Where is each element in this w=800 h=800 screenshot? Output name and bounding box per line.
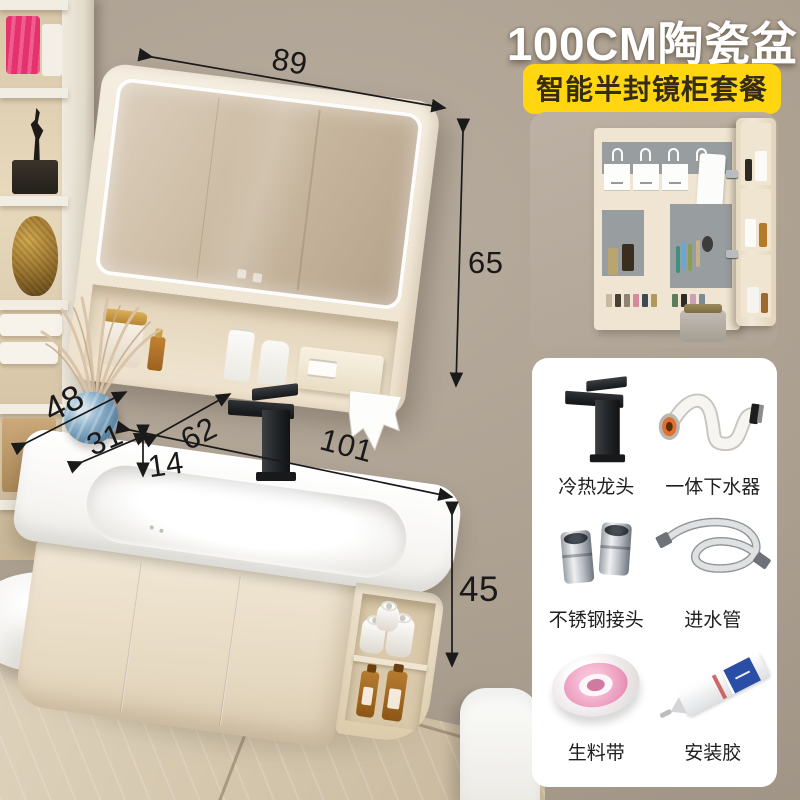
small-bottle: [608, 248, 618, 275]
makeup-item: [633, 294, 639, 307]
accessory-label: 进水管: [684, 605, 741, 634]
glue-tip: [659, 709, 672, 719]
accessory-label: 不锈钢接头: [549, 605, 644, 634]
faucet-body: [595, 399, 620, 455]
accessory-row: 生料带 安装胶: [538, 634, 771, 767]
mirror-cabinet-open-inset: [530, 112, 778, 348]
accessory-item: 冷热龙头: [538, 368, 655, 501]
product-image: 89 65 48 31 62 14 101 45 100CM陶瓷盆 智能半封镜柜…: [0, 0, 800, 800]
bottle: [745, 159, 752, 181]
hanging-hook: [612, 148, 623, 161]
makeup-item: [615, 294, 621, 307]
open-cabinet-door: [736, 118, 776, 326]
accessory-label: 生料带: [568, 738, 625, 767]
seal-tape-icon: [548, 648, 645, 725]
door-hinge: [726, 170, 738, 178]
makeup-item: [606, 294, 612, 307]
storage-card-box: [604, 164, 630, 191]
black-faucet-icon: [565, 378, 627, 462]
accessory-row: 不锈钢接头 进水管: [538, 501, 771, 634]
door-hinge: [726, 250, 738, 258]
included-accessories-panel: 冷热龙头 一体下水器: [532, 358, 777, 787]
storage-card-box: [633, 164, 659, 191]
dim-basin-depth: 14: [146, 447, 185, 483]
makeup-item: [624, 294, 630, 307]
makeup-item: [642, 294, 648, 307]
seal-tape-icon: [538, 634, 655, 738]
dim-mirror-height: 65: [468, 247, 503, 278]
accessory-label: 冷热龙头: [558, 472, 634, 501]
hanging-hook: [668, 148, 679, 161]
accessory-label: 一体下水器: [665, 472, 760, 501]
faucet-handle: [587, 376, 627, 392]
braided-hose-icon: [655, 501, 772, 605]
braided-hose-icon: [655, 513, 772, 593]
steel-connector-icon: [538, 501, 655, 605]
small-bottle: [622, 244, 634, 271]
accessory-item: 一体下水器: [655, 368, 772, 501]
package-badge: 智能半封镜柜套餐: [523, 64, 781, 114]
makeup-item: [672, 294, 678, 307]
black-faucet-icon: [538, 368, 655, 472]
cosmetic-pencil: [676, 246, 680, 273]
steel-connector-icon: [599, 522, 633, 576]
accessory-item: 不锈钢接头: [538, 501, 655, 634]
accessory-item: 进水管: [655, 501, 772, 634]
makeup-brush: [702, 236, 713, 252]
hanging-hook: [640, 148, 651, 161]
door-shelf: [741, 255, 771, 317]
drain-pipe-icon: [655, 368, 772, 472]
open-cabinet-body: [594, 128, 740, 330]
bottle: [747, 287, 759, 313]
dim-mirror-width: 89: [270, 43, 310, 80]
drain-pipe-icon: [655, 381, 772, 459]
door-shelf: [741, 123, 771, 185]
storage-card-box: [662, 164, 688, 191]
accessory-label: 安装胶: [684, 738, 741, 767]
subtitle-wrap: 智能半封镜柜套餐: [502, 64, 800, 114]
bottle: [745, 219, 756, 247]
glue-tube-icon: [655, 650, 772, 722]
bottle: [755, 151, 767, 181]
faucet-base: [590, 454, 625, 462]
glue-label: [720, 657, 760, 695]
bottle: [761, 293, 768, 313]
glue-tube-icon: [655, 634, 772, 738]
accessory-item: 生料带: [538, 634, 655, 767]
hand-towel: [696, 153, 726, 211]
makeup-item: [651, 294, 657, 307]
dim-cabinet-height: 45: [459, 572, 499, 607]
bottle: [759, 223, 767, 247]
glue-tube-body: [676, 653, 770, 718]
steel-connector-icon: [560, 530, 594, 584]
door-shelf: [741, 189, 771, 251]
brush-handle: [696, 240, 700, 267]
accessory-row: 冷热龙头 一体下水器: [538, 368, 771, 501]
accessory-item: 安装胶: [655, 634, 772, 767]
cosmetic-pencil: [688, 244, 692, 271]
storage-basket: [680, 310, 726, 342]
cosmetic-pencil: [682, 242, 686, 269]
